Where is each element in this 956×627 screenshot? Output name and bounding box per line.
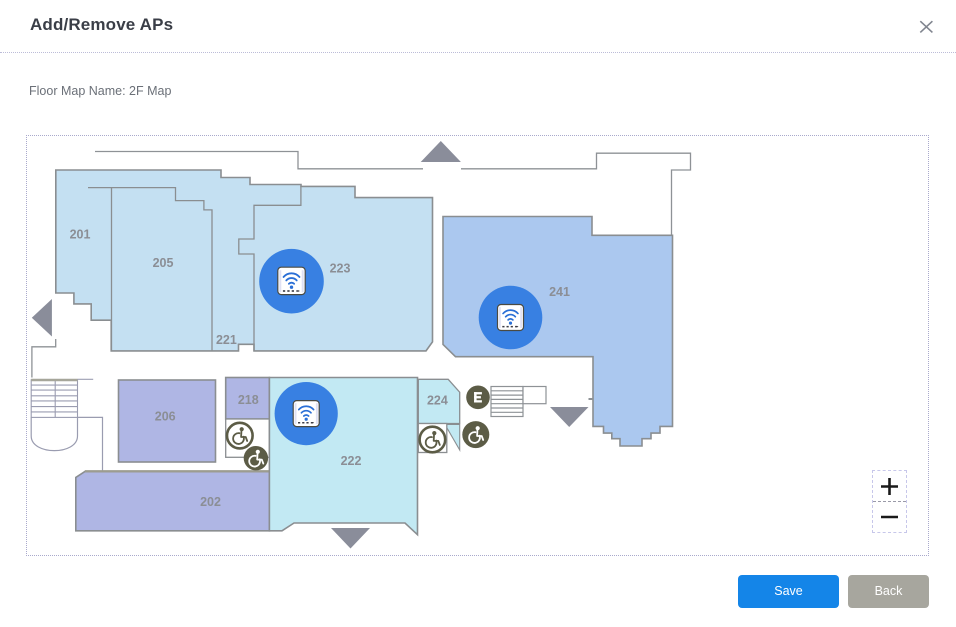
svg-text:222: 222 xyxy=(341,454,362,468)
svg-text:241: 241 xyxy=(549,285,570,299)
svg-text:206: 206 xyxy=(155,410,176,424)
svg-text:224: 224 xyxy=(427,394,448,408)
svg-text:218: 218 xyxy=(238,393,259,407)
svg-text:221: 221 xyxy=(216,333,237,347)
svg-text:223: 223 xyxy=(330,262,351,276)
svg-text:201: 201 xyxy=(70,228,91,242)
svg-text:202: 202 xyxy=(200,495,221,509)
svg-text:205: 205 xyxy=(153,256,174,270)
